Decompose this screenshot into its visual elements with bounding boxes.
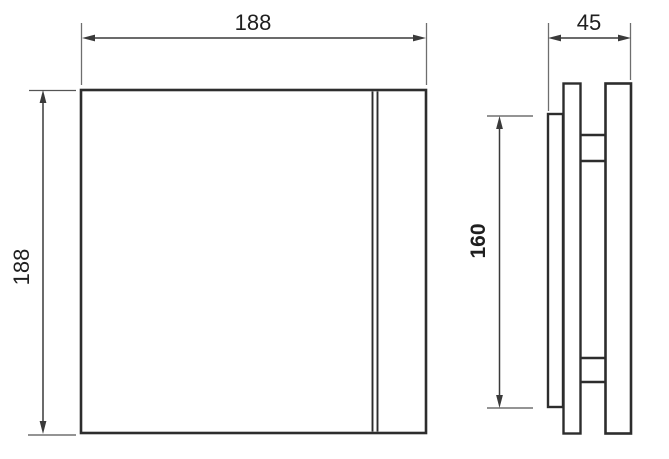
- arrowhead-left-icon: [548, 35, 561, 42]
- front-view-outline: [81, 90, 426, 433]
- front-width-dimension: 188: [82, 10, 427, 85]
- front-height-dimension: 188: [9, 90, 76, 435]
- side-view: [548, 84, 631, 434]
- dimension-drawing: 188 188 45 160: [0, 0, 669, 459]
- side-height-dimension: 160: [467, 116, 533, 408]
- arrowhead-right-icon: [413, 35, 426, 42]
- side-height-label: 160: [467, 223, 490, 258]
- arrowhead-left-icon: [82, 35, 95, 42]
- side-depth-label: 45: [577, 10, 601, 35]
- arrowhead-down-icon: [496, 395, 503, 408]
- arrowhead-down-icon: [40, 421, 47, 434]
- front-height-label: 188: [9, 249, 34, 286]
- side-view-backplate: [548, 114, 563, 407]
- technical-drawing-canvas: 188 188 45 160: [0, 0, 669, 459]
- front-width-label: 188: [235, 10, 272, 35]
- side-view-front-panel-bar: [606, 84, 632, 434]
- arrowhead-up-icon: [496, 116, 503, 129]
- arrowhead-up-icon: [40, 90, 47, 103]
- side-view-body-bar: [564, 84, 581, 434]
- arrowhead-right-icon: [618, 35, 631, 42]
- front-view: [81, 90, 426, 433]
